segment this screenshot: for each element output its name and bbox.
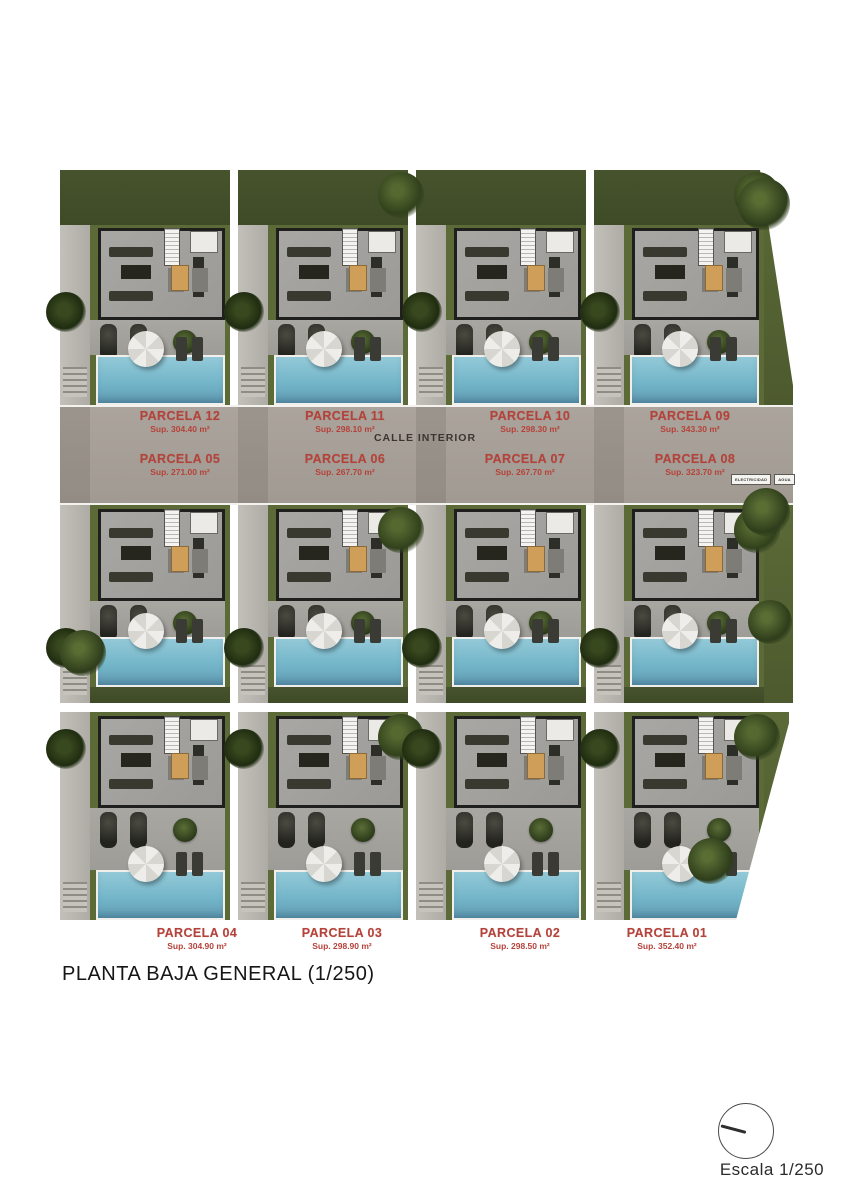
sofa-icon <box>643 572 687 582</box>
sun-lounger-icon <box>548 852 559 876</box>
sofa-icon <box>109 528 153 538</box>
terrace <box>446 808 581 870</box>
utility-labels: ELECTRICIDAD AGUA <box>731 474 795 485</box>
pool <box>452 870 581 920</box>
bathroom-icon <box>190 231 218 253</box>
lawn <box>238 170 408 225</box>
parcel-area: Sup. 323.70 m² <box>655 467 735 477</box>
parcel-area: Sup. 271.00 m² <box>140 467 220 477</box>
side-path <box>238 712 268 920</box>
parcel-label: PARCELA 11 Sup. 298.10 m² <box>305 409 385 434</box>
sun-lounger-icon <box>370 619 381 643</box>
sofa-icon <box>643 735 687 745</box>
parasol-icon <box>128 613 164 649</box>
kitchen-island-icon <box>655 265 685 279</box>
kitchen-counter-icon <box>727 257 738 297</box>
car-icon <box>456 812 473 848</box>
parcel-area: Sup. 343.30 m² <box>650 424 730 434</box>
dining-table-icon <box>705 546 723 572</box>
sun-lounger-icon <box>354 337 365 361</box>
page-title: PLANTA BAJA GENERAL (1/250) <box>62 963 375 986</box>
parcel-name: PARCELA 02 <box>480 926 560 940</box>
sun-lounger-icon <box>532 619 543 643</box>
stairs-icon <box>520 509 536 547</box>
planter-tree-icon <box>351 818 375 842</box>
steps-icon <box>597 665 621 695</box>
terrace <box>90 601 225 637</box>
lawn <box>60 170 230 225</box>
pool <box>96 870 225 920</box>
villa-floorplan <box>98 509 225 601</box>
parcel-name: PARCELA 04 <box>157 926 237 940</box>
kitchen-island-icon <box>655 546 685 560</box>
pool <box>274 870 403 920</box>
side-path <box>594 505 624 703</box>
villa-floorplan <box>454 509 581 601</box>
sun-lounger-icon <box>710 337 721 361</box>
sun-lounger-icon <box>370 337 381 361</box>
terrace <box>624 601 759 637</box>
parcel-label: PARCELA 01 Sup. 352.40 m² <box>627 926 707 951</box>
parcel-label: PARCELA 09 Sup. 343.30 m² <box>650 409 730 434</box>
terrace <box>624 320 759 355</box>
plot-row-bottom <box>60 712 772 920</box>
sofa-icon <box>643 247 687 257</box>
kitchen-island-icon <box>477 753 507 767</box>
car-icon <box>664 812 681 848</box>
parcel-name: PARCELA 01 <box>627 926 707 940</box>
plot-row-top <box>60 170 772 405</box>
bathroom-icon <box>190 512 218 534</box>
car-icon <box>634 812 651 848</box>
plot-row-middle <box>60 505 772 703</box>
sofa-icon <box>643 528 687 538</box>
kitchen-counter-icon <box>193 538 204 578</box>
stairs-icon <box>698 228 714 266</box>
bathroom-icon <box>546 512 574 534</box>
sun-lounger-icon <box>726 619 737 643</box>
sofa-icon <box>465 528 509 538</box>
kitchen-island-icon <box>477 265 507 279</box>
pool <box>630 355 759 405</box>
kitchen-island-icon <box>299 753 329 767</box>
sofa-icon <box>287 291 331 301</box>
villa-floorplan <box>632 509 759 601</box>
sofa-icon <box>109 779 153 789</box>
parcel-label: PARCELA 06 Sup. 267.70 m² <box>305 452 385 477</box>
parcel-name: PARCELA 12 <box>140 409 220 423</box>
kitchen-island-icon <box>121 546 151 560</box>
stairs-icon <box>164 716 180 754</box>
parasol-icon <box>662 331 698 367</box>
kitchen-counter-icon <box>549 745 560 785</box>
kitchen-counter-icon <box>371 538 382 578</box>
steps-icon <box>419 665 443 695</box>
planter-tree-icon <box>529 818 553 842</box>
compass-needle <box>720 1124 746 1134</box>
parcel-plot-04 <box>60 712 230 920</box>
car-icon <box>634 605 651 641</box>
sofa-icon <box>465 572 509 582</box>
parcel-plot-11 <box>238 170 408 405</box>
pool <box>274 637 403 687</box>
parcel-name: PARCELA 06 <box>305 452 385 466</box>
parcel-name: PARCELA 05 <box>140 452 220 466</box>
sofa-icon <box>287 528 331 538</box>
sun-lounger-icon <box>176 852 187 876</box>
sofa-icon <box>465 291 509 301</box>
parcel-area: Sup. 304.90 m² <box>157 941 237 951</box>
parcel-area: Sup. 352.40 m² <box>627 941 707 951</box>
dining-table-icon <box>527 546 545 572</box>
sofa-icon <box>109 247 153 257</box>
sun-lounger-icon <box>532 852 543 876</box>
villa-floorplan <box>632 228 759 320</box>
villa-floorplan <box>276 716 403 808</box>
sun-lounger-icon <box>726 337 737 361</box>
car-icon <box>278 812 295 848</box>
steps-icon <box>419 367 443 397</box>
kitchen-counter-icon <box>371 257 382 297</box>
terrace <box>268 320 403 355</box>
parasol-icon <box>306 331 342 367</box>
sun-lounger-icon <box>548 337 559 361</box>
tree-icon <box>688 838 734 884</box>
sofa-icon <box>643 291 687 301</box>
parcel-label: PARCELA 04 Sup. 304.90 m² <box>157 926 237 951</box>
terrace <box>90 320 225 355</box>
tree-icon <box>742 488 790 536</box>
dining-table-icon <box>705 753 723 779</box>
parcel-area: Sup. 304.40 m² <box>140 424 220 434</box>
driveway <box>594 407 624 503</box>
parcel-plot-07 <box>416 505 586 703</box>
steps-icon <box>597 882 621 912</box>
kitchen-island-icon <box>655 753 685 767</box>
kitchen-island-icon <box>477 546 507 560</box>
parcel-name: PARCELA 10 <box>490 409 570 423</box>
sofa-icon <box>287 779 331 789</box>
car-icon <box>100 812 117 848</box>
stairs-icon <box>520 228 536 266</box>
driveway <box>416 407 446 503</box>
north-arrow-icon <box>718 1103 774 1159</box>
kitchen-counter-icon <box>549 538 560 578</box>
dining-table-icon <box>527 265 545 291</box>
steps-icon <box>241 882 265 912</box>
side-path <box>416 225 446 405</box>
driveway <box>238 407 268 503</box>
tree-icon <box>60 630 106 676</box>
bathroom-icon <box>368 719 396 741</box>
parcel-area: Sup. 298.10 m² <box>305 424 385 434</box>
stairs-icon <box>342 716 358 754</box>
villa-floorplan <box>276 509 403 601</box>
parcel-name: PARCELA 09 <box>650 409 730 423</box>
kitchen-counter-icon <box>727 538 738 578</box>
dining-table-icon <box>527 753 545 779</box>
sofa-icon <box>109 735 153 745</box>
parcel-plot-10 <box>416 170 586 405</box>
villa-floorplan <box>454 228 581 320</box>
parcel-name: PARCELA 07 <box>485 452 565 466</box>
parcel-label: PARCELA 12 Sup. 304.40 m² <box>140 409 220 434</box>
pool <box>96 355 225 405</box>
parcel-name: PARCELA 11 <box>305 409 385 423</box>
sofa-icon <box>109 572 153 582</box>
dining-table-icon <box>349 546 367 572</box>
villa-floorplan <box>98 228 225 320</box>
sofa-icon <box>465 735 509 745</box>
parcel-area: Sup. 298.30 m² <box>490 424 570 434</box>
terrace <box>446 320 581 355</box>
dining-table-icon <box>349 265 367 291</box>
car-icon <box>308 812 325 848</box>
sofa-icon <box>287 247 331 257</box>
parasol-icon <box>484 613 520 649</box>
stairs-icon <box>520 716 536 754</box>
stairs-icon <box>342 228 358 266</box>
dining-table-icon <box>171 753 189 779</box>
bathroom-icon <box>190 719 218 741</box>
kitchen-counter-icon <box>193 745 204 785</box>
parcel-plot-12 <box>60 170 230 405</box>
stairs-icon <box>698 509 714 547</box>
kitchen-island-icon <box>299 546 329 560</box>
stairs-icon <box>164 509 180 547</box>
bathroom-icon <box>368 512 396 534</box>
side-path <box>60 712 90 920</box>
steps-icon <box>597 367 621 397</box>
parcel-label: PARCELA 03 Sup. 298.90 m² <box>302 926 382 951</box>
sun-lounger-icon <box>176 619 187 643</box>
villa-floorplan <box>276 228 403 320</box>
villa-floorplan <box>454 716 581 808</box>
parcel-plot-01 <box>594 712 764 920</box>
sofa-icon <box>643 779 687 789</box>
car-icon <box>456 605 473 641</box>
parcel-plot-06 <box>238 505 408 703</box>
sun-lounger-icon <box>532 337 543 361</box>
parcel-plot-02 <box>416 712 586 920</box>
site-plan: PARCELA 12 Sup. 304.40 m² PARCELA 11 Sup… <box>0 0 848 1200</box>
sun-lounger-icon <box>192 619 203 643</box>
driveway <box>60 407 90 503</box>
sun-lounger-icon <box>192 337 203 361</box>
parcel-area: Sup. 298.50 m² <box>480 941 560 951</box>
steps-icon <box>419 882 443 912</box>
parcel-label: PARCELA 05 Sup. 271.00 m² <box>140 452 220 477</box>
steps-icon <box>241 665 265 695</box>
villa-floorplan <box>632 716 759 808</box>
parasol-icon <box>306 613 342 649</box>
sun-lounger-icon <box>354 619 365 643</box>
parcel-label: PARCELA 02 Sup. 298.50 m² <box>480 926 560 951</box>
pool <box>630 637 759 687</box>
parcel-label: PARCELA 07 Sup. 267.70 m² <box>485 452 565 477</box>
sofa-icon <box>465 779 509 789</box>
sofa-icon <box>287 735 331 745</box>
sofa-icon <box>465 247 509 257</box>
side-path <box>416 712 446 920</box>
scale-label: Escala 1/250 <box>702 1160 842 1180</box>
car-icon <box>130 812 147 848</box>
pool <box>452 637 581 687</box>
parasol-icon <box>484 846 520 882</box>
steps-icon <box>241 367 265 397</box>
lawn <box>416 170 586 225</box>
kitchen-island-icon <box>299 265 329 279</box>
kitchen-counter-icon <box>371 745 382 785</box>
parasol-icon <box>662 613 698 649</box>
kitchen-counter-icon <box>549 257 560 297</box>
sun-lounger-icon <box>548 619 559 643</box>
dining-table-icon <box>171 265 189 291</box>
bathroom-icon <box>724 231 752 253</box>
sun-lounger-icon <box>192 852 203 876</box>
bathroom-icon <box>724 719 752 741</box>
pool <box>96 637 225 687</box>
bathroom-icon <box>546 231 574 253</box>
steps-icon <box>63 882 87 912</box>
side-path <box>594 225 624 405</box>
parcel-area: Sup. 298.90 m² <box>302 941 382 951</box>
stairs-icon <box>164 228 180 266</box>
sun-lounger-icon <box>354 852 365 876</box>
parcel-plot-03 <box>238 712 408 920</box>
kitchen-counter-icon <box>727 745 738 785</box>
kitchen-counter-icon <box>193 257 204 297</box>
terrace <box>446 601 581 637</box>
bathroom-icon <box>368 231 396 253</box>
sun-lounger-icon <box>176 337 187 361</box>
sun-lounger-icon <box>370 852 381 876</box>
parcel-label: PARCELA 08 Sup. 323.70 m² <box>655 452 735 477</box>
dining-table-icon <box>171 546 189 572</box>
side-path <box>238 505 268 703</box>
side-path <box>238 225 268 405</box>
terrace <box>268 808 403 870</box>
terrace <box>268 601 403 637</box>
steps-icon <box>63 367 87 397</box>
parcel-area: Sup. 267.70 m² <box>485 467 565 477</box>
site-plan-page: PARCELA 12 Sup. 304.40 m² PARCELA 11 Sup… <box>0 0 848 1200</box>
stairs-icon <box>342 509 358 547</box>
planter-tree-icon <box>173 818 197 842</box>
sofa-icon <box>287 572 331 582</box>
car-icon <box>278 605 295 641</box>
parasol-icon <box>306 846 342 882</box>
parasol-icon <box>128 846 164 882</box>
parasol-icon <box>484 331 520 367</box>
pool <box>274 355 403 405</box>
car-icon <box>486 812 503 848</box>
villa-floorplan <box>98 716 225 808</box>
pool <box>452 355 581 405</box>
electricity-label: ELECTRICIDAD <box>731 474 771 485</box>
street-name: CALLE INTERIOR <box>374 432 476 444</box>
tree-icon <box>738 178 790 230</box>
water-label: AGUA <box>774 474 795 485</box>
side-path <box>60 225 90 405</box>
parcel-area: Sup. 267.70 m² <box>305 467 385 477</box>
sofa-icon <box>109 291 153 301</box>
bathroom-icon <box>546 719 574 741</box>
car-icon <box>100 605 117 641</box>
stairs-icon <box>698 716 714 754</box>
terrace <box>90 808 225 870</box>
sun-lounger-icon <box>710 619 721 643</box>
side-path <box>594 712 624 920</box>
parcel-name: PARCELA 03 <box>302 926 382 940</box>
parcel-label: PARCELA 10 Sup. 298.30 m² <box>490 409 570 434</box>
parcel-name: PARCELA 08 <box>655 452 735 466</box>
tree-icon <box>748 600 792 644</box>
kitchen-island-icon <box>121 753 151 767</box>
dining-table-icon <box>349 753 367 779</box>
parasol-icon <box>128 331 164 367</box>
kitchen-island-icon <box>121 265 151 279</box>
parcel-plot-08 <box>594 505 764 703</box>
side-path <box>416 505 446 703</box>
dining-table-icon <box>705 265 723 291</box>
